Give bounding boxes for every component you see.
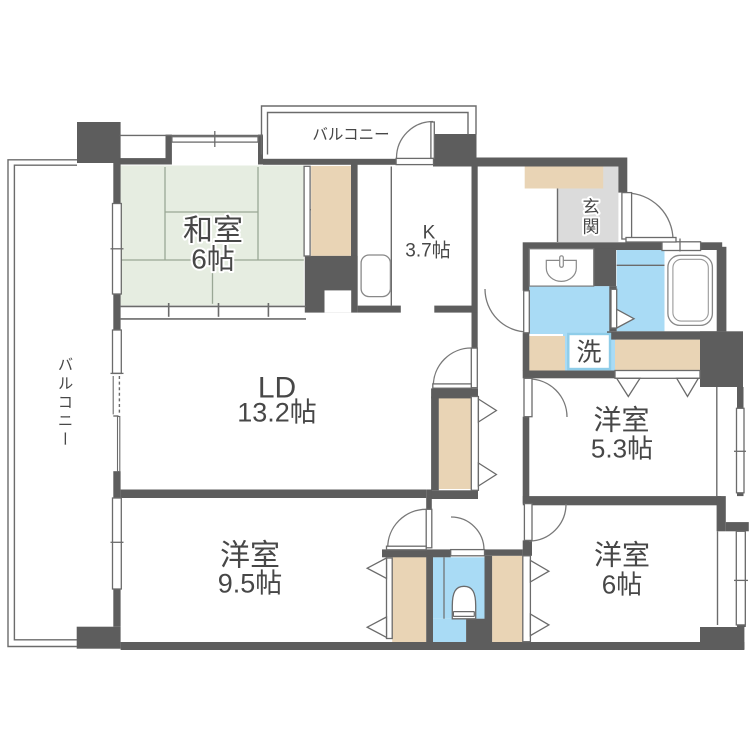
svg-text:バルコニー: バルコニー bbox=[56, 356, 73, 450]
svg-text:6帖: 6帖 bbox=[602, 570, 642, 600]
svg-text:玄: 玄 bbox=[583, 198, 600, 217]
svg-text:洗: 洗 bbox=[576, 339, 601, 367]
svg-text:13.2帖: 13.2帖 bbox=[237, 398, 317, 428]
svg-text:3.7帖: 3.7帖 bbox=[405, 240, 450, 262]
svg-text:洋室: 洋室 bbox=[594, 540, 650, 571]
svg-text:6帖: 6帖 bbox=[191, 244, 235, 275]
svg-text:洋室: 洋室 bbox=[593, 405, 649, 436]
svg-text:5.3帖: 5.3帖 bbox=[591, 434, 653, 464]
svg-text:関: 関 bbox=[583, 218, 600, 237]
svg-text:9.5帖: 9.5帖 bbox=[218, 569, 283, 599]
svg-text:バルコニー: バルコニー bbox=[312, 127, 389, 144]
